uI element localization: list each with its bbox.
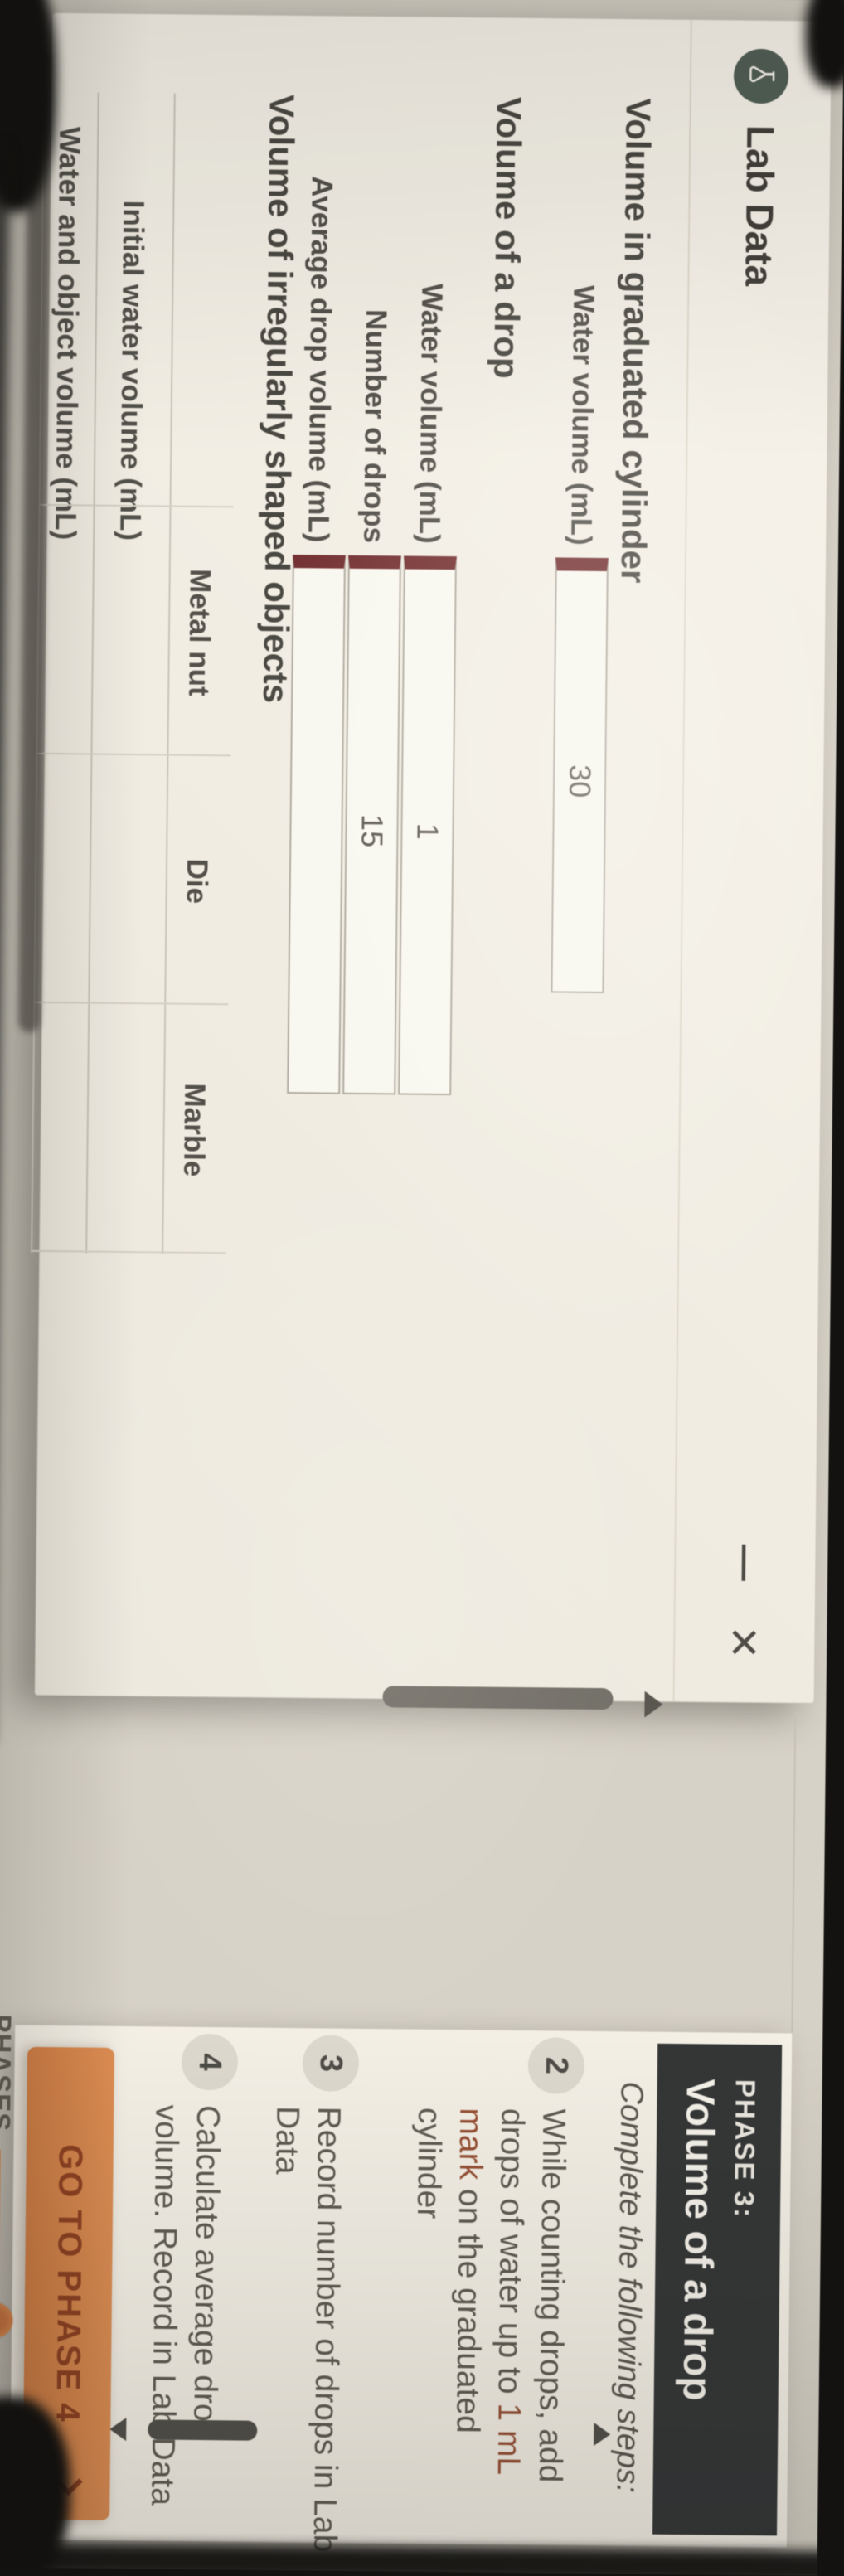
sim-screen: Lab Data — × Volume in graduated cylinde…: [0, 0, 844, 2576]
go-button-label: GO TO PHASE 4: [48, 2144, 89, 2423]
row-label-initial-water-volume: Initial water volume (mL): [113, 93, 151, 541]
table-line: [162, 94, 176, 1254]
step4-line2: volume. Record in Lab Data: [144, 2104, 184, 2506]
window-titlebar: Lab Data — ×: [673, 20, 832, 1703]
scroll-down-icon[interactable]: [109, 2418, 126, 2441]
step-number-badge: 2: [528, 2037, 585, 2094]
field-label-number-of-drops: Number of drops: [357, 95, 395, 543]
step3-text: Record number of drops in Lab Data: [262, 2106, 350, 2553]
table-cell[interactable]: [97, 1009, 158, 1250]
step2-line3a-highlight: mark: [452, 2108, 488, 2180]
step-number-badge: 4: [182, 2034, 239, 2091]
phase-panel-header: PHASE 3: Volume of a drop: [652, 2044, 782, 2536]
table-cell[interactable]: [99, 760, 160, 1002]
number-of-drops-input[interactable]: [342, 555, 401, 1095]
section-heading-irregular-objects: Volume of irregularly shaped objects: [255, 95, 302, 704]
flask-icon: [734, 49, 789, 104]
rotated-photo-canvas: Lab Data — × Volume in graduated cylinde…: [0, 0, 844, 2576]
scroll-up-icon[interactable]: [644, 1691, 662, 1718]
photo-bezel-edge: [0, 146, 10, 1743]
section-heading-graduated-cylinder: Volume in graduated cylinder: [614, 98, 658, 583]
column-header-metal-nut: Metal nut: [181, 512, 216, 753]
phase-kicker: PHASE 3:: [725, 2079, 761, 2535]
step2-line1: While counting drops, add: [532, 2108, 572, 2482]
step2-line4: cylinder: [410, 2108, 447, 2219]
table-cell[interactable]: [102, 512, 162, 753]
field-label-water-volume-1: Water volume (mL): [564, 98, 602, 546]
table-cell[interactable]: [26, 1008, 86, 1249]
steps-scrollbar-thumb[interactable]: [148, 2419, 257, 2440]
minimize-icon[interactable]: —: [725, 1543, 766, 1584]
column-header-marble: Marble: [176, 1010, 211, 1250]
scroll-up-icon[interactable]: [594, 2423, 610, 2446]
field-label-water-volume-2: Water volume (mL): [412, 96, 450, 544]
step2-line2a: drops of water up to: [492, 2108, 531, 2404]
step-number-badge: 3: [303, 2035, 360, 2092]
table-line: [31, 1250, 226, 1254]
step4-line1: Calculate average drop: [187, 2105, 226, 2440]
window-controls: — ×: [723, 1543, 768, 1665]
table-line: [33, 1002, 228, 1005]
phase-panel: PHASE 3: Volume of a drop Complete the f…: [9, 2025, 793, 2549]
row-label-water-and-object-volume: Water and object volume (mL): [48, 92, 86, 540]
phases-progress-filled: [0, 2148, 1, 2307]
close-icon[interactable]: ×: [723, 1621, 767, 1665]
step2-line2b-highlight: 1 mL: [491, 2403, 527, 2475]
phase-intro: Complete the following steps:: [609, 2081, 649, 2493]
step3-line1: Record number of drops in Lab: [307, 2106, 347, 2552]
section-heading-volume-of-drop: Volume of a drop: [486, 97, 529, 379]
step4-text: Calculate average drop volume. Record in…: [141, 2104, 228, 2506]
step2-line3b: on the graduated: [449, 2180, 487, 2433]
field-label-average-drop-volume: Average drop volume (mL): [301, 95, 339, 542]
table-line: [36, 753, 230, 756]
water-volume-input-graduated[interactable]: [551, 557, 608, 993]
step2-text: While counting drops, add drops of water…: [405, 2108, 575, 2483]
step3-line2: Data: [269, 2106, 306, 2175]
water-volume-input-drop[interactable]: [398, 555, 457, 1095]
column-header-die: Die: [178, 761, 214, 1002]
lab-data-window: Lab Data — × Volume in graduated cylinde…: [35, 12, 832, 1704]
window-scrollbar-thumb[interactable]: [382, 1686, 613, 1710]
phases-label: PHASES: [0, 2014, 17, 2132]
window-title: Lab Data: [736, 125, 783, 287]
phase-title: Volume of a drop: [672, 2079, 723, 2535]
divider: [791, 1711, 796, 2032]
